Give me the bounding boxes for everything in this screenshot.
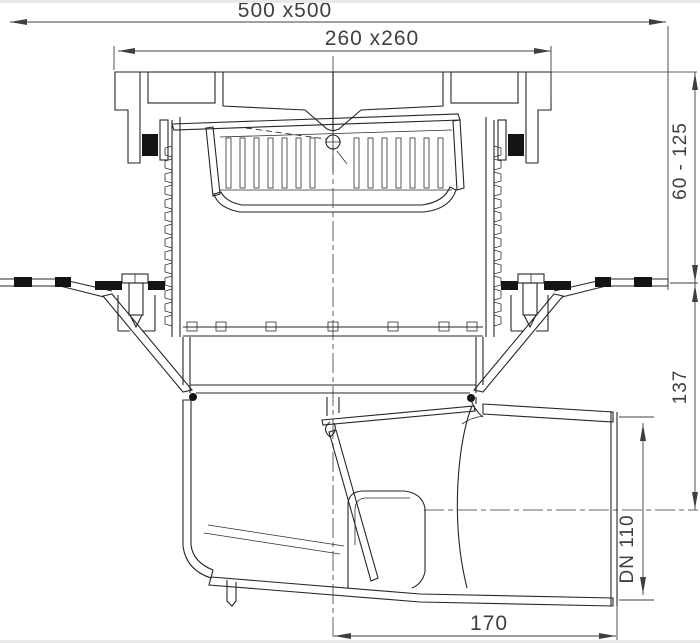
label-outlet-diameter: DN 110	[617, 514, 638, 583]
technical-drawing-page: 500 x500 260 x260 60 - 125 137	[0, 0, 700, 643]
drawing-background	[0, 0, 700, 643]
floor-drain-section-drawing: 500 x500 260 x260 60 - 125 137	[0, 0, 700, 643]
gasket-seal-right	[508, 134, 524, 156]
label-outlet-offset: 170	[470, 612, 508, 635]
label-grate: 260 x260	[325, 27, 419, 50]
page-edge-top	[0, 0, 700, 3]
label-height-range: 60 - 125	[670, 122, 691, 200]
label-overall: 500 x500	[238, 0, 332, 22]
gasket-seal-left	[142, 134, 158, 156]
label-depth: 137	[670, 370, 691, 405]
